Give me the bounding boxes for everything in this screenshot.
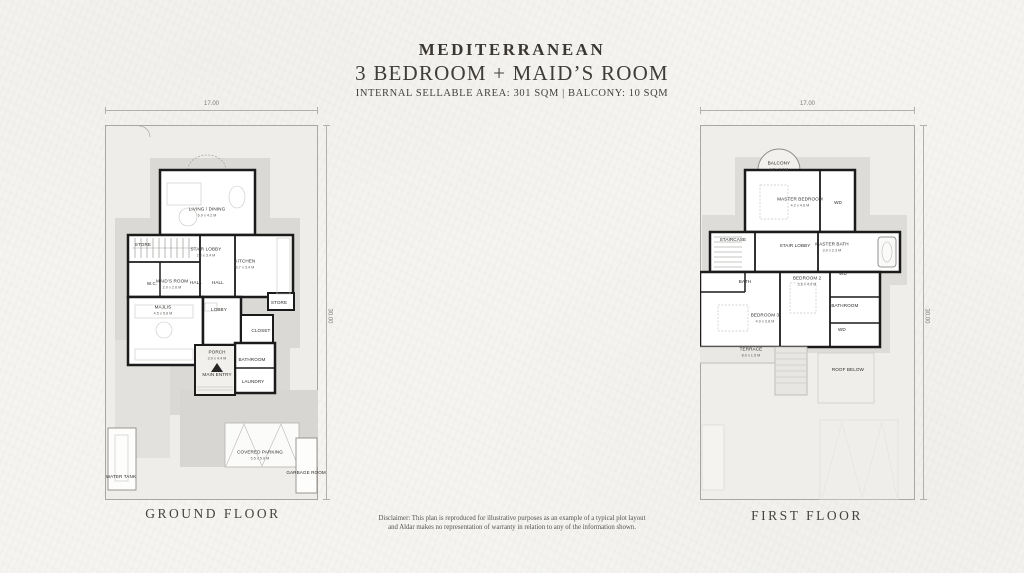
ground-floor-plan: 17.00 30.00: [105, 125, 318, 500]
ff-width-dimension-line: [700, 110, 915, 111]
room-label-hall: HALL: [190, 280, 202, 286]
room-label-wd: WD: [839, 271, 847, 277]
disclaimer-line-1: Disclaimer: This plan is reproduced for …: [262, 515, 762, 524]
room-label-maid-s-room: MAID’S ROOM2.0 x 2.6 M: [156, 279, 188, 290]
room-label-hall: HALL: [212, 280, 224, 286]
gf-height-dimension: 30.00: [326, 308, 332, 323]
room-label-bedroom-2: BEDROOM 23.6 x 4.0 M: [793, 276, 821, 287]
room-label-garbage-room: GARBAGE ROOM: [286, 470, 326, 476]
room-label-kitchen: KITCHEN3.7 x 3.4 M: [234, 259, 255, 270]
ff-height-dimension: 30.00: [923, 308, 929, 323]
room-label-majlis: MAJLIS4.5 x 5.6 M: [152, 305, 173, 316]
room-label-master-bath: MASTER BATH3.0 x 2.3 M: [815, 242, 848, 253]
room-label-closet: CLOSET: [251, 328, 270, 334]
room-label-stair-lobby: STAIR LOBBY: [780, 243, 811, 249]
room-label-bathroom: BATHROOM: [831, 303, 858, 309]
disclaimer-line-2: and Aldar makes no representation of war…: [262, 524, 762, 533]
room-label-terrace: TERRACE8.0 x 1.5 M: [740, 347, 763, 358]
room-label-master-bedroom: MASTER BEDROOM4.2 x 4.6 M: [777, 197, 823, 208]
room-label-stair-lobby: STAIR LOBBY2.8 x 3.4 M: [191, 247, 222, 258]
room-label-balcony: BALCONY4.2 x 1.9 M: [768, 160, 791, 171]
room-label-bathroom: BATHROOM: [238, 357, 265, 363]
room-label-store: STORE: [271, 300, 287, 306]
room-label-roof-below: ROOF BELOW: [832, 367, 864, 373]
room-label-store: STORE: [135, 242, 151, 248]
room-label-laundry: LAUNDRY: [242, 379, 265, 385]
room-label-main-entry: MAIN ENTRY: [202, 372, 231, 378]
room-label-bedroom-3: BEDROOM 34.0 x 3.8 M: [751, 313, 779, 324]
room-label-living-dining: LIVING / DINING6.9 x 4.2 M: [189, 207, 225, 218]
room-label-water-tank: WATER TANK: [106, 474, 136, 480]
ff-width-dimension: 17.00: [700, 101, 915, 107]
page-title: MEDITERRANEAN: [0, 40, 1024, 60]
room-label-lobby: LOBBY: [211, 307, 227, 313]
room-label-porch: PORCH3.0 x 4.4 M: [207, 350, 228, 361]
room-label-bath: BATH: [739, 279, 751, 285]
room-label-wd: WD: [834, 200, 842, 206]
ff-room-labels: BALCONY4.2 x 1.9 MMASTER BEDROOM4.2 x 4.…: [700, 125, 915, 500]
sellable-area-line: INTERNAL SELLABLE AREA: 301 SQM | BALCON…: [0, 88, 1024, 99]
first-floor-plan: 17.00 30.00: [700, 125, 915, 500]
page-subtitle: 3 BEDROOM + MAID’S ROOM: [0, 61, 1024, 86]
gf-room-labels: LIVING / DINING6.9 x 4.2 MSTORESTAIR LOB…: [105, 125, 318, 500]
room-label-wd: WD: [838, 327, 846, 333]
disclaimer: Disclaimer: This plan is reproduced for …: [262, 515, 762, 533]
room-label-staircase: STAIRCASE: [720, 237, 747, 243]
gf-width-dimension-line: [105, 110, 318, 111]
room-label-covered-parking: COVERED PARKING5.5 x 5.0 M: [237, 450, 283, 461]
gf-width-dimension: 17.00: [105, 101, 318, 107]
